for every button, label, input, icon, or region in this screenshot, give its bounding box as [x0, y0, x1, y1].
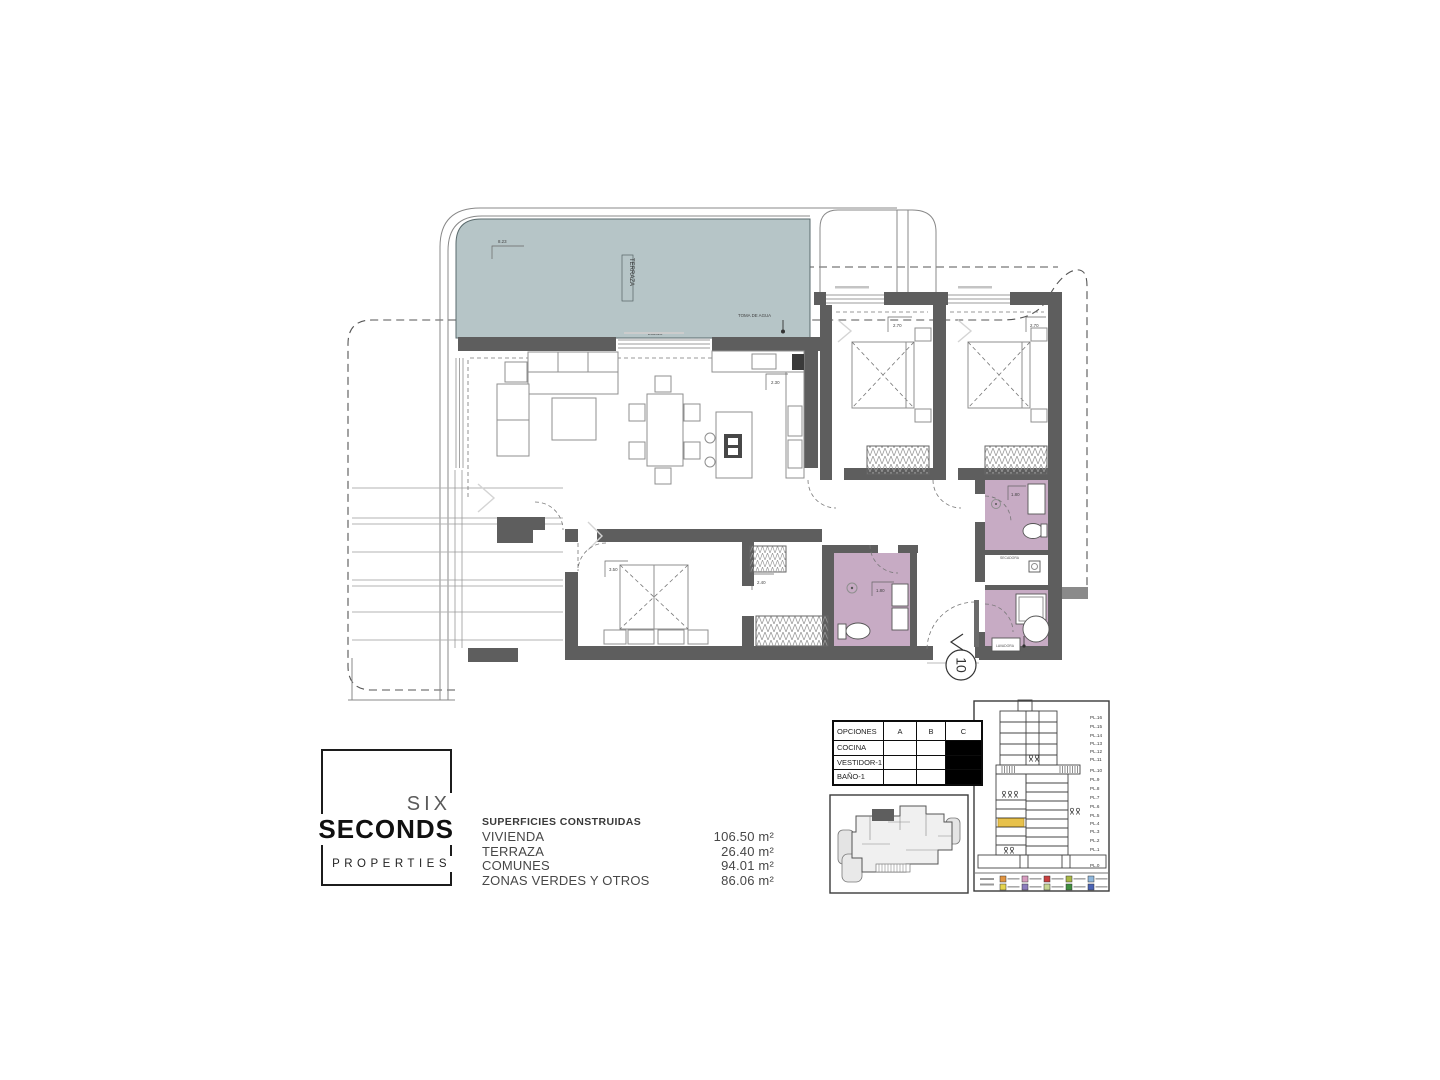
- company-logo: SIX SECONDS PROPERTIES: [321, 749, 452, 886]
- sink: [892, 608, 908, 630]
- wardrobe: [750, 546, 786, 572]
- options-header-row: OPCIONES A B C: [833, 721, 982, 741]
- toilet: [846, 623, 870, 639]
- surface-value: 94.01 m²: [721, 859, 774, 874]
- key-plan: [830, 795, 968, 893]
- option-b-header: B: [917, 721, 946, 741]
- svg-text:PL.5: PL.5: [1090, 813, 1100, 818]
- surface-row: COMUNES 94.01 m²: [482, 859, 774, 874]
- svg-text:PL.16: PL.16: [1090, 715, 1102, 720]
- surface-label: ZONAS VERDES Y OTROS: [482, 874, 650, 889]
- building-section: PL.16 PL.15 PL.14 PL.13 PL.12 PL.11 PL.1…: [974, 700, 1109, 891]
- option-a-cell: [884, 770, 917, 785]
- toilet: [1023, 524, 1043, 539]
- bedroom3-dim: 2.70: [1030, 323, 1039, 328]
- surface-value: 106.50 m²: [714, 830, 774, 845]
- bedroom2-dim: 2.70: [893, 323, 902, 328]
- entrance-arrow-icon: [951, 634, 963, 650]
- entrance-door-leaf: [974, 600, 979, 647]
- option-label: BAÑO-1: [833, 770, 884, 785]
- surface-label: VIVIENDA: [482, 830, 544, 845]
- option-a-header: A: [884, 721, 917, 741]
- option-c-cell-selected: [946, 755, 983, 770]
- svg-text:PL.8: PL.8: [1090, 786, 1100, 791]
- option-a-cell: [884, 755, 917, 770]
- master-bedroom: 3.50 2.40: [535, 502, 828, 646]
- svg-text:PL.15: PL.15: [1090, 724, 1102, 729]
- built-surfaces: SUPERFICIES CONSTRUIDAS VIVIENDA 106.50 …: [482, 816, 774, 888]
- sofa-seat: [528, 372, 618, 394]
- svg-text:PL.0: PL.0: [1090, 863, 1100, 868]
- svg-text:PL.6: PL.6: [1090, 804, 1100, 809]
- option-label: VESTIDOR-1: [833, 755, 884, 770]
- option-row-vestidor: VESTIDOR-1: [833, 755, 982, 770]
- bath3-dim: 1.80: [876, 588, 885, 593]
- option-c-header: C: [946, 721, 983, 741]
- surface-label: COMUNES: [482, 859, 550, 874]
- highlighted-unit: [998, 819, 1024, 827]
- dryer-icon: [1029, 561, 1040, 572]
- sink: [892, 584, 908, 606]
- option-b-cell: [917, 770, 946, 785]
- exterior-stairs: [352, 470, 563, 648]
- stool: [705, 433, 715, 443]
- svg-text:PL.14: PL.14: [1090, 733, 1102, 738]
- side-table: [505, 362, 527, 382]
- dining-table: [647, 394, 683, 466]
- bath1-dim: 1.80: [1011, 492, 1020, 497]
- option-row-bano: BAÑO-1: [833, 770, 982, 785]
- wardrobe: [985, 446, 1047, 474]
- svg-text:PL.10: PL.10: [1090, 768, 1102, 773]
- surface-row: TERRAZA 26.40 m²: [482, 845, 774, 860]
- floorplan-page: { "logo": { "line1": "SIX", "line2": "SE…: [0, 0, 1440, 1080]
- surface-row: ZONAS VERDES Y OTROS 86.06 m²: [482, 874, 774, 889]
- option-c-cell-selected: [946, 770, 983, 785]
- logo-six: SIX: [399, 793, 454, 816]
- stool: [705, 457, 715, 467]
- living-room-furniture: 2.30: [497, 351, 804, 484]
- option-row-cocina: COCINA: [833, 741, 982, 756]
- surface-value: 26.40 m²: [721, 845, 774, 860]
- option-b-cell: [917, 755, 946, 770]
- unit-number: 10: [954, 657, 970, 673]
- svg-text:PL.13: PL.13: [1090, 741, 1102, 746]
- option-b-cell: [917, 741, 946, 756]
- entrance: 10: [927, 600, 979, 680]
- master-dim: 3.50: [609, 567, 618, 572]
- svg-text:PL.7: PL.7: [1090, 795, 1100, 800]
- option-a-cell: [884, 741, 917, 756]
- kitchen-dim: 2.30: [771, 380, 780, 385]
- kitchen: [705, 351, 804, 478]
- laundry-nook: SECADORA: [1000, 556, 1040, 572]
- water-heater: [1023, 616, 1049, 642]
- lavadora-label: LAVADORA: [996, 644, 1015, 648]
- options-header: OPCIONES: [833, 721, 884, 741]
- floor-plan-drawing: 8.23 TERRAZA 235x20 TOMA DE AGUA: [0, 0, 1440, 1080]
- sofa-back: [528, 352, 618, 372]
- built-surfaces-title: SUPERFICIES CONSTRUIDAS: [482, 816, 774, 828]
- svg-text:PL.12: PL.12: [1090, 749, 1102, 754]
- nightstand: [915, 409, 931, 422]
- logo-seconds: SECONDS: [311, 814, 457, 845]
- sink: [1028, 484, 1045, 514]
- terrace-dim: 8.23: [498, 239, 507, 244]
- wardrobe: [867, 446, 929, 474]
- coffee-table: [552, 398, 596, 440]
- secadora-label: SECADORA: [1000, 556, 1020, 560]
- logo-properties: PROPERTIES: [330, 856, 453, 872]
- options-table: OPCIONES A B C COCINA VESTIDOR-1 BAÑO-1: [832, 720, 983, 786]
- surface-row: VIVIENDA 106.50 m²: [482, 830, 774, 845]
- svg-text:PL.2: PL.2: [1090, 838, 1100, 843]
- wardrobe: [756, 616, 828, 646]
- nightstand: [1031, 328, 1047, 341]
- surface-label: TERRAZA: [482, 845, 544, 860]
- svg-text:PL.3: PL.3: [1090, 829, 1100, 834]
- nightstand: [915, 328, 931, 341]
- svg-text:PL.4: PL.4: [1090, 821, 1100, 826]
- terrace-label: TERRAZA: [628, 258, 634, 286]
- nightstand: [1031, 409, 1047, 422]
- option-c-cell-selected: [946, 741, 983, 756]
- terrace: 8.23 TERRAZA 235x20 TOMA DE AGUA: [456, 219, 810, 338]
- svg-text:PL.1: PL.1: [1090, 847, 1100, 852]
- svg-text:PL.11: PL.11: [1090, 757, 1102, 762]
- kitchen-appliance: [792, 354, 804, 370]
- svg-text:PL.9: PL.9: [1090, 777, 1100, 782]
- hall-dim: 2.40: [757, 580, 766, 585]
- option-label: COCINA: [833, 741, 884, 756]
- water-intake-label: TOMA DE AGUA: [738, 313, 771, 318]
- surface-value: 86.06 m²: [721, 874, 774, 889]
